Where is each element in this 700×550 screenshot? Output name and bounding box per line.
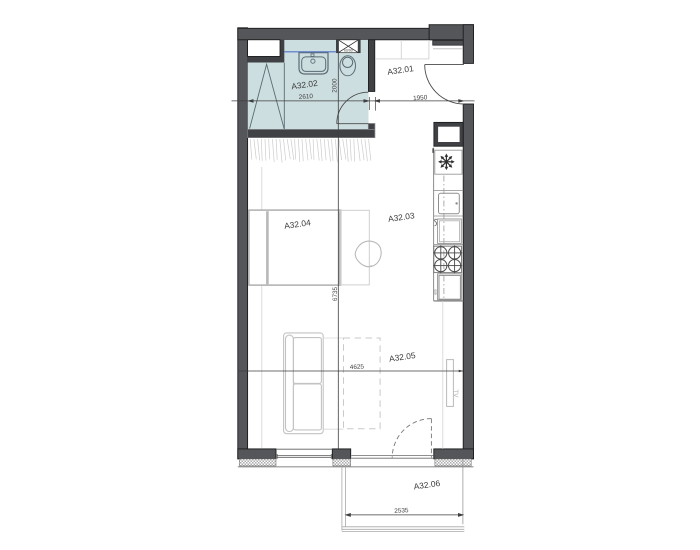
svg-text:TV: TV — [452, 389, 459, 398]
svg-text:2610: 2610 — [299, 93, 314, 101]
svg-text:6735: 6735 — [332, 286, 339, 301]
svg-text:600: 600 — [434, 289, 438, 295]
svg-text:1950: 1950 — [413, 94, 428, 102]
svg-text:60/90: 60/90 — [344, 49, 353, 53]
svg-text:2000: 2000 — [332, 78, 339, 93]
svg-text:2535: 2535 — [394, 507, 409, 515]
svg-text:4625: 4625 — [350, 363, 365, 371]
